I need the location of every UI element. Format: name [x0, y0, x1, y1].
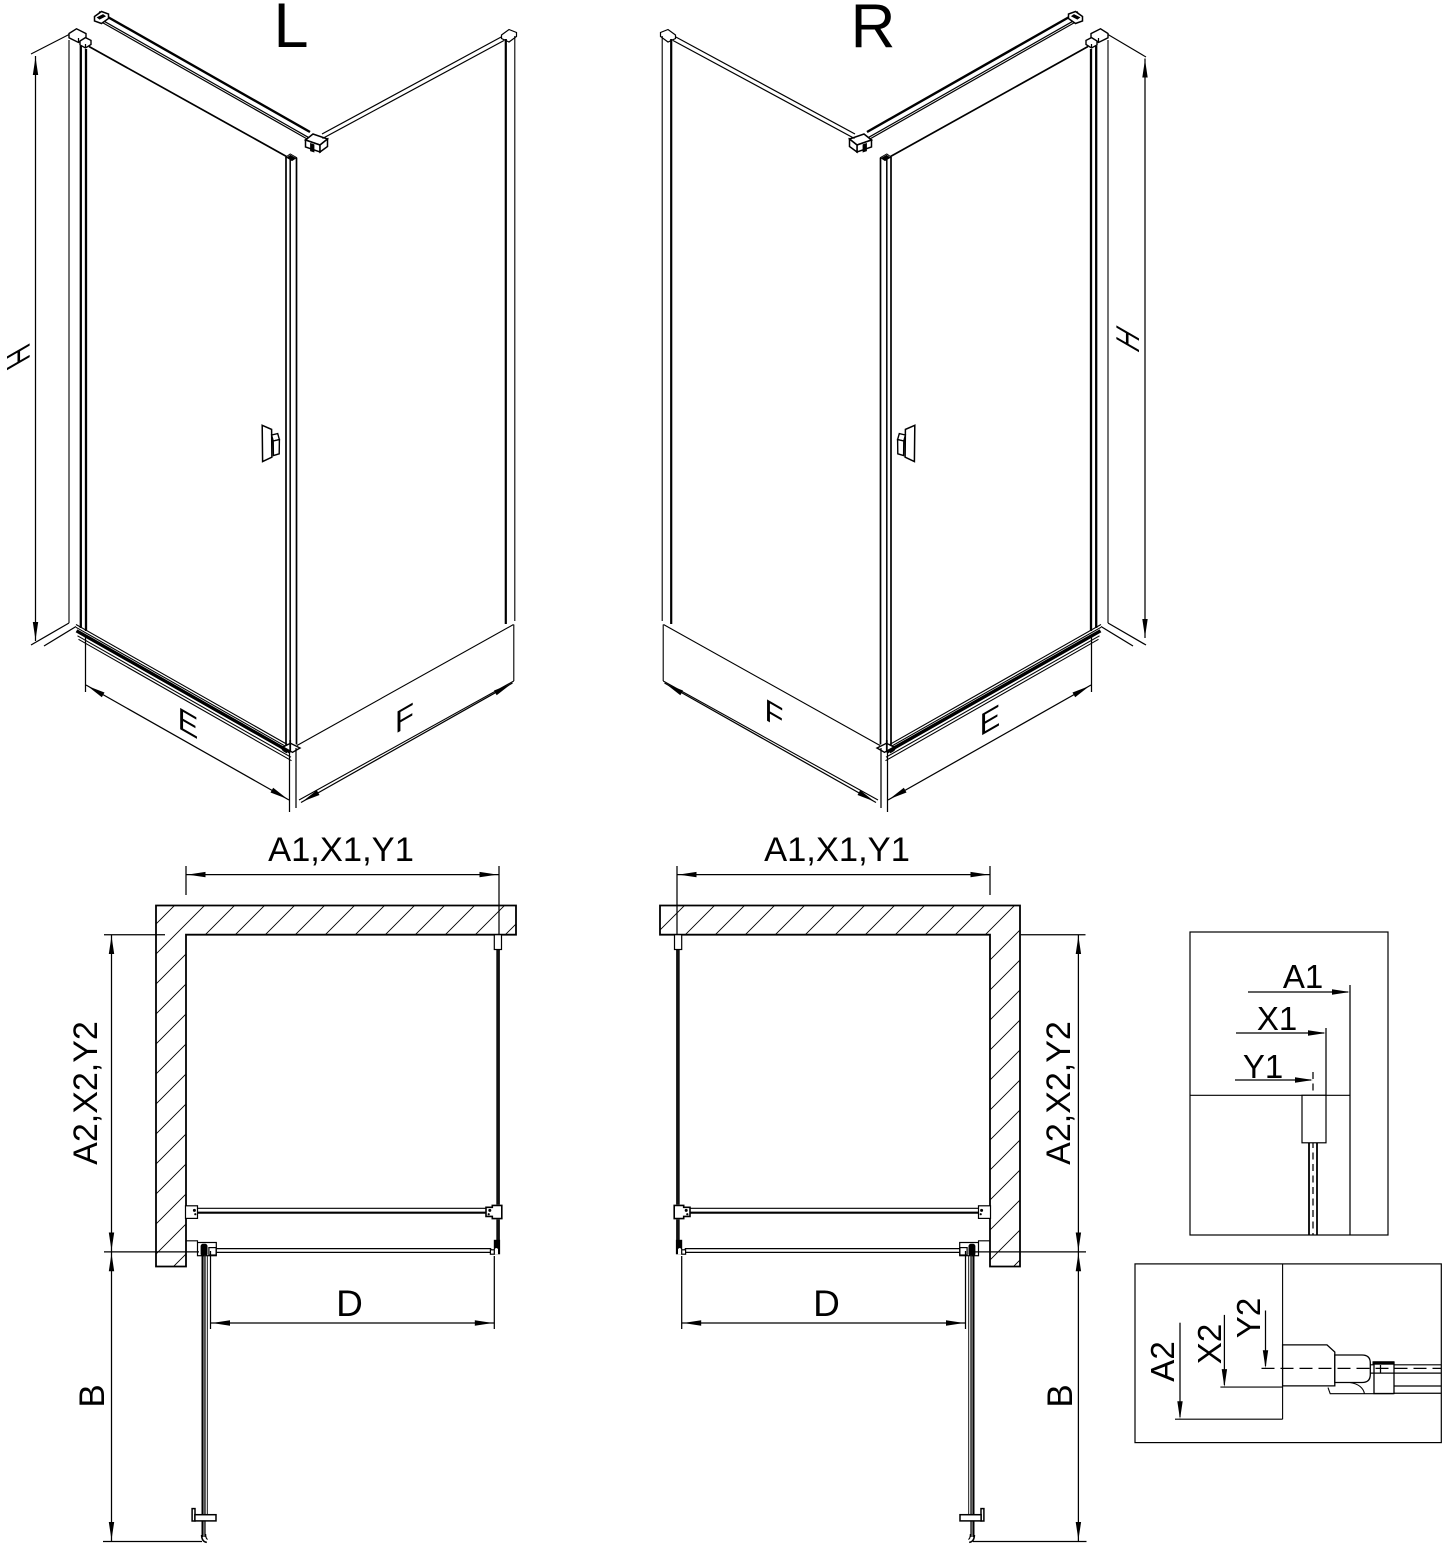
svg-text:A1,X1,Y1: A1,X1,Y1 [764, 831, 910, 869]
svg-text:B: B [1041, 1384, 1080, 1407]
svg-text:X2: X2 [1191, 1324, 1228, 1364]
svg-text:A2,X2,Y2: A2,X2,Y2 [67, 1021, 105, 1165]
svg-text:A2: A2 [1144, 1341, 1181, 1381]
svg-text:D: D [336, 1283, 363, 1324]
svg-text:A2,X2,Y2: A2,X2,Y2 [1040, 1021, 1078, 1165]
svg-text:R: R [851, 0, 896, 62]
svg-text:X1: X1 [1257, 1000, 1297, 1037]
svg-text:D: D [813, 1283, 840, 1324]
svg-text:A1,X1,Y1: A1,X1,Y1 [268, 831, 414, 869]
svg-text:A1: A1 [1283, 958, 1323, 995]
svg-text:Y2: Y2 [1230, 1298, 1267, 1338]
svg-text:L: L [273, 0, 308, 61]
svg-text:B: B [73, 1384, 112, 1407]
svg-text:Y1: Y1 [1243, 1048, 1283, 1085]
